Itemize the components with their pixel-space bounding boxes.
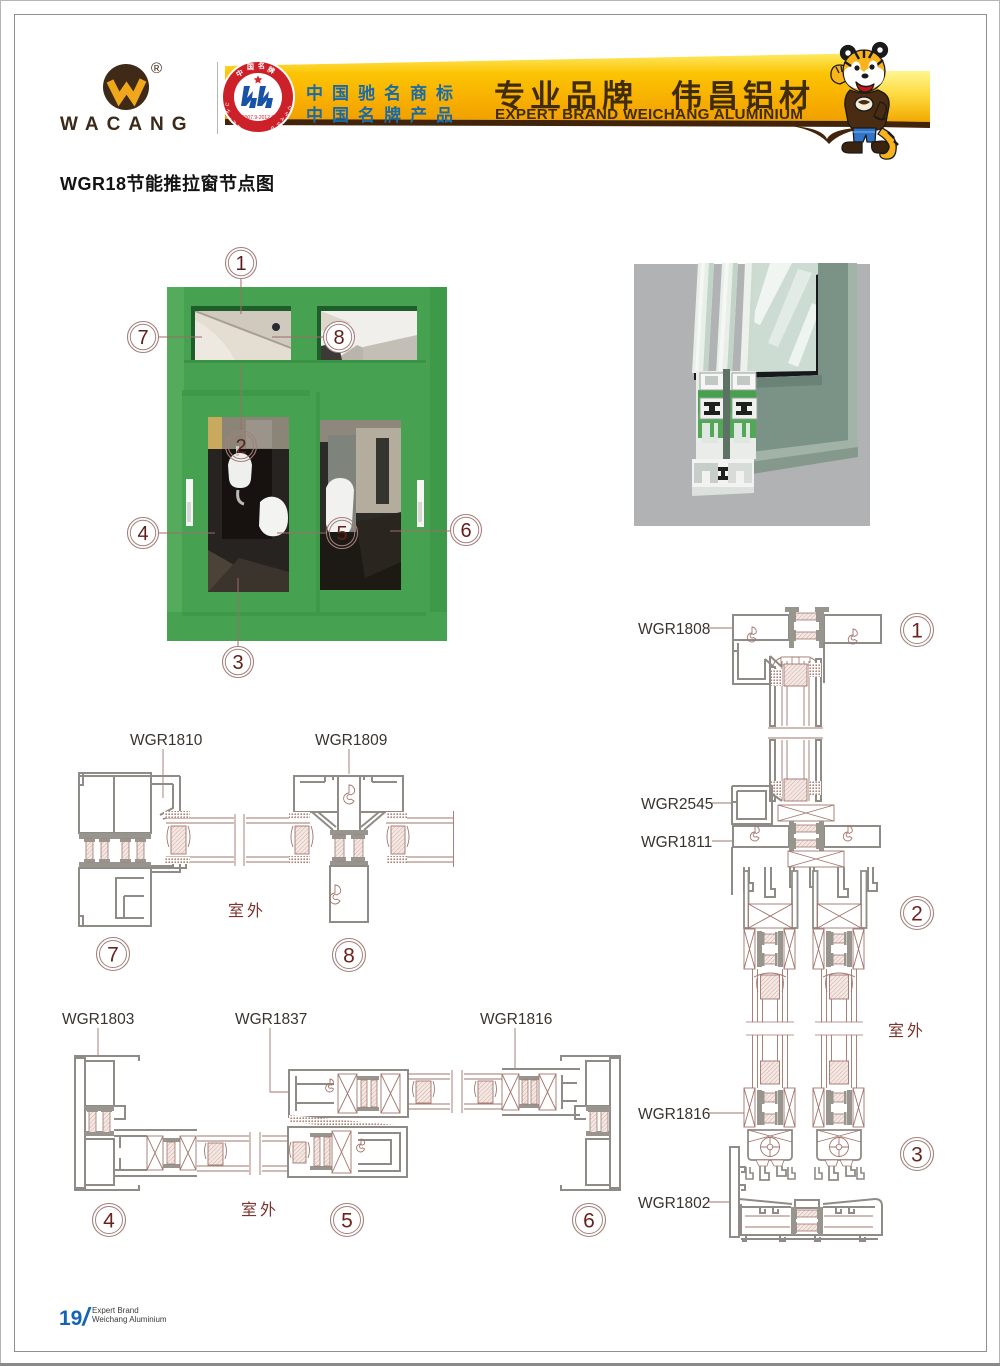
svg-text:4: 4 bbox=[103, 1210, 115, 1233]
svg-text:WGR1808: WGR1808 bbox=[638, 621, 710, 638]
svg-text:3: 3 bbox=[911, 1144, 923, 1167]
svg-text:WGR1803: WGR1803 bbox=[62, 1011, 134, 1028]
svg-text:®: ® bbox=[151, 60, 162, 77]
svg-text:8: 8 bbox=[343, 945, 355, 968]
svg-text:2: 2 bbox=[911, 903, 923, 926]
svg-text:2007.9-2012.9: 2007.9-2012.9 bbox=[242, 115, 274, 121]
svg-text:WGR1811: WGR1811 bbox=[641, 834, 712, 851]
svg-text:WGR1809: WGR1809 bbox=[315, 732, 387, 749]
svg-text:6: 6 bbox=[583, 1210, 595, 1233]
svg-text:名: 名 bbox=[258, 61, 265, 70]
svg-text:室外: 室外 bbox=[241, 1201, 279, 1219]
svg-text:WGR1810: WGR1810 bbox=[130, 732, 203, 749]
svg-text:WGR1816: WGR1816 bbox=[638, 1106, 710, 1123]
svg-text:WGR2545: WGR2545 bbox=[641, 796, 713, 813]
svg-text:1: 1 bbox=[911, 620, 923, 643]
svg-text:国: 国 bbox=[247, 62, 254, 71]
svg-text:7: 7 bbox=[107, 944, 119, 967]
svg-text:室外: 室外 bbox=[228, 902, 266, 920]
svg-text:WGR1816: WGR1816 bbox=[480, 1011, 552, 1028]
svg-text:WGR1802: WGR1802 bbox=[638, 1195, 710, 1212]
svg-text:5: 5 bbox=[341, 1210, 353, 1233]
svg-text:室外: 室外 bbox=[888, 1022, 926, 1040]
svg-text:WGR1837: WGR1837 bbox=[235, 1011, 307, 1028]
